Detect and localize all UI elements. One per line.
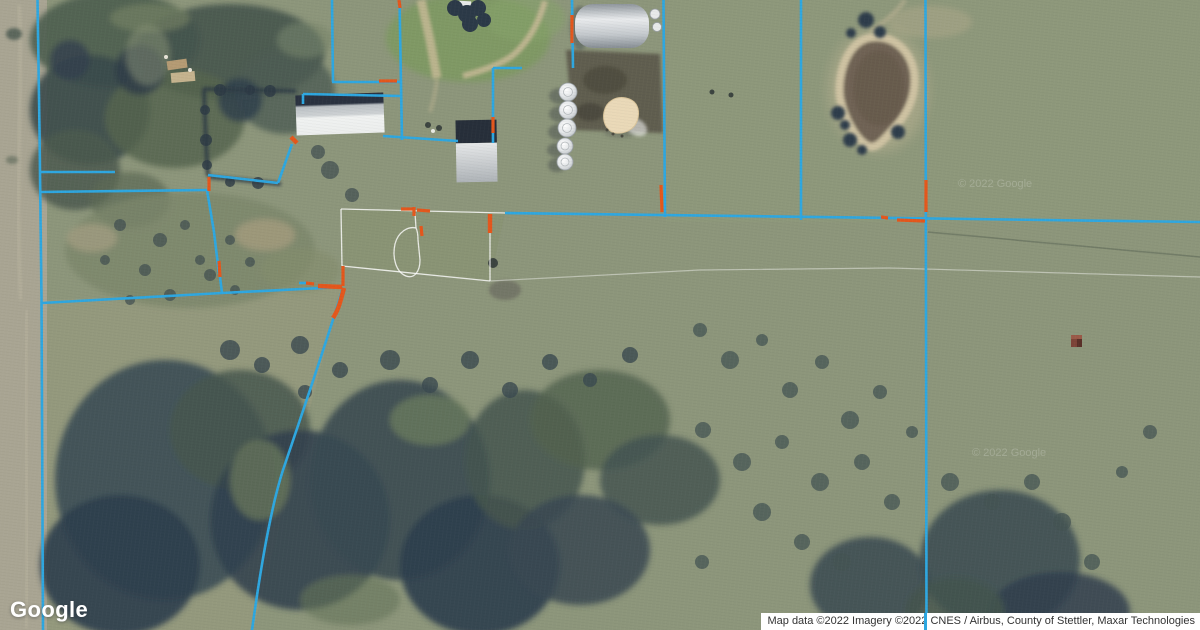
attribution-bar: Map data ©2022 Imagery ©2022 CNES / Airb… [761, 613, 1200, 630]
boundary-line-over-attribution [924, 613, 927, 630]
small-shed [1071, 335, 1082, 347]
attribution-text: Map data ©2022 Imagery ©2022 CNES / Airb… [767, 615, 1195, 627]
imagery-watermark: © 2022 Google [958, 178, 1032, 190]
imagery-watermark: © 2022 Google [972, 447, 1046, 459]
google-logo[interactable]: Google [10, 597, 88, 623]
terrain [0, 0, 1200, 630]
map-canvas[interactable]: © 2022 Google © 2022 Google [0, 0, 1200, 630]
barn [295, 92, 384, 135]
workshop [455, 120, 497, 183]
satellite-map[interactable]: © 2022 Google © 2022 Google Map data ©20… [0, 0, 1200, 630]
